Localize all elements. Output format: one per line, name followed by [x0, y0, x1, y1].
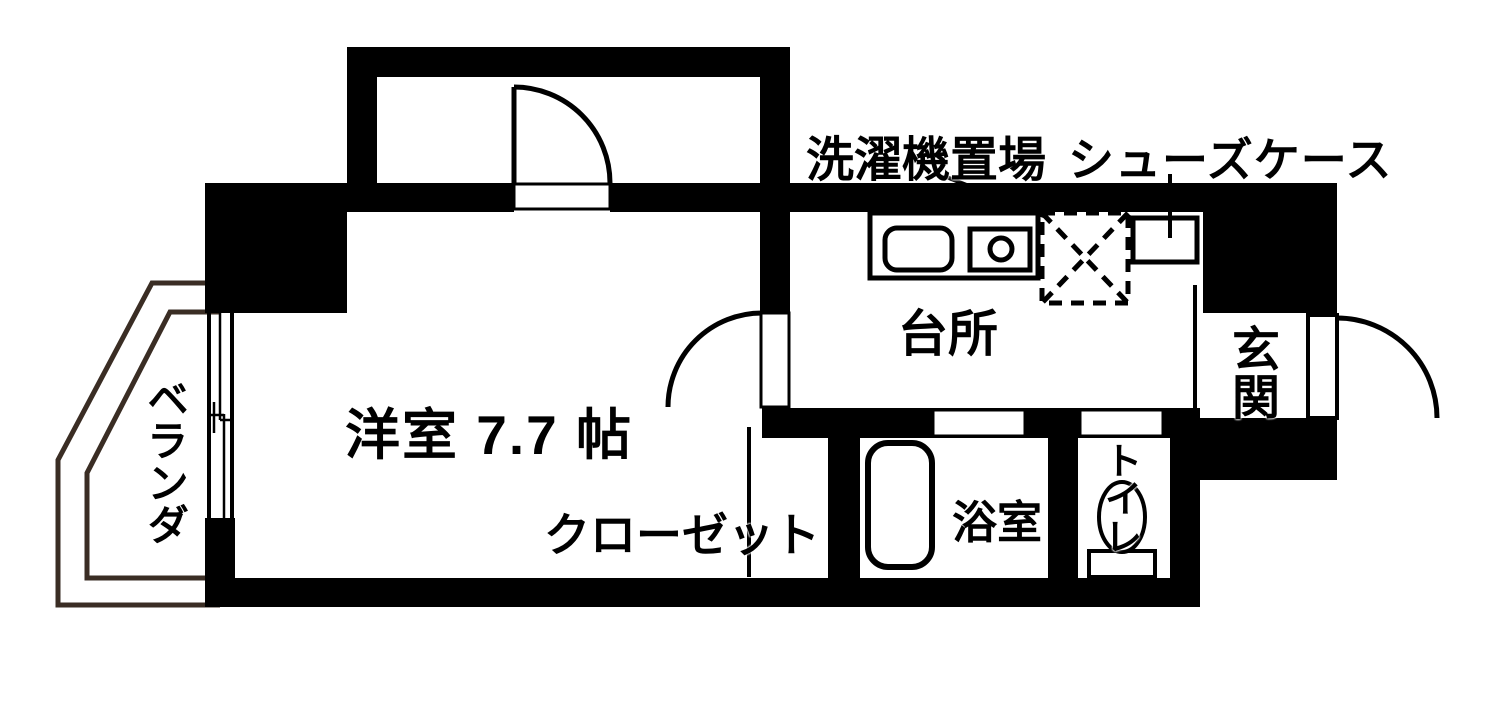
washer-area-label: 洗濯機置場 [806, 120, 1046, 190]
burner-icon [990, 238, 1012, 260]
toilet-door [1080, 410, 1163, 436]
kitchen-counter-icon [870, 213, 1038, 278]
veranda-label: ベランダ [142, 377, 187, 545]
toilet-label: トイレ [1100, 441, 1138, 555]
veranda-outline [58, 283, 220, 605]
floor-plan: 洋室 7.7 帖 クローゼット 台所 浴室 トイレ 玄関 ベランダ 洗濯機置場 … [0, 0, 1500, 712]
entrance-label: 玄関 [1226, 324, 1274, 420]
bathroom-label: 浴室 [918, 486, 1076, 551]
door-arc-icon [1337, 318, 1437, 418]
west-window-icon [207, 313, 234, 518]
shoe-case-icon [1133, 218, 1197, 262]
kitchen-label: 台所 [868, 294, 1028, 366]
closet-label: クローゼット [532, 499, 832, 565]
upper-room-door [514, 87, 610, 209]
washer-area-icon [1042, 213, 1128, 303]
main-room-label: 洋室 7.7 帖 [233, 390, 745, 470]
sink-icon [885, 228, 952, 270]
entrance-door [1308, 315, 1437, 418]
bathroom-door [933, 410, 1025, 436]
door-arc-icon [514, 87, 610, 183]
shoe-case-label: シューズケース [1068, 124, 1392, 190]
